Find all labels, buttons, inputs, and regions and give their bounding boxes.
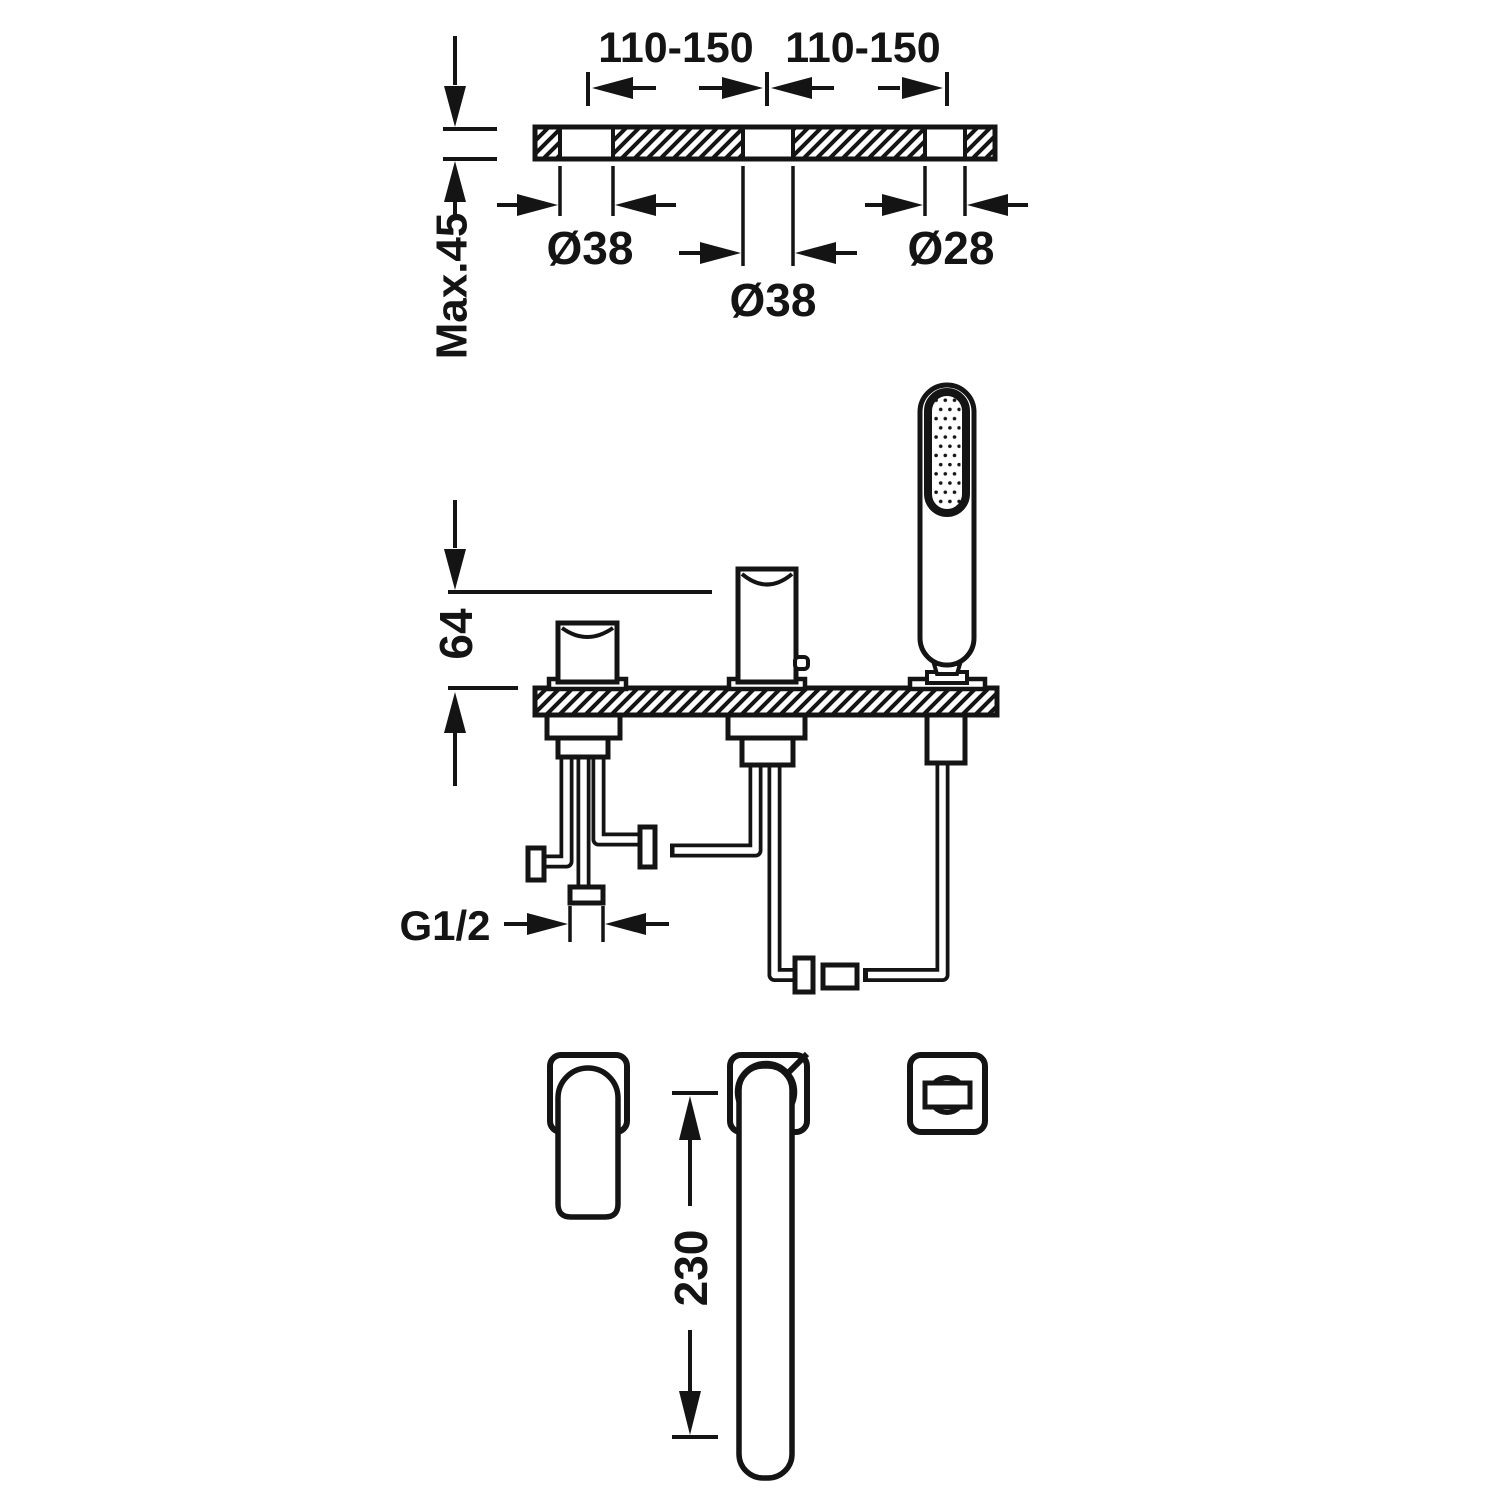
handle-left-pipe [536, 751, 567, 862]
arrow-left-icon [967, 194, 1008, 216]
arrow-right-icon [527, 913, 568, 935]
arrow-up-icon [444, 692, 466, 733]
deck-hatch-segment [793, 127, 925, 159]
dim-thread-size: G1/2 [399, 902, 669, 949]
arrow-left-icon [615, 194, 656, 216]
hole-spacing-left-label: 110-150 [598, 24, 753, 72]
deck-cross-section-view: 110-150 110-150 Ø38 [428, 24, 1029, 359]
diverter-knob [795, 657, 808, 669]
deck-slab-section [535, 127, 995, 159]
deck-hatch-segment [613, 127, 743, 159]
arrow-down-icon [444, 86, 466, 127]
deck-slab-side [535, 688, 997, 715]
hand-shower-hose-pipe [863, 758, 943, 975]
shower-holder-top-view [910, 1055, 985, 1132]
holder-clip [925, 1083, 970, 1107]
arrow-left-icon [592, 77, 633, 99]
arrow-down-icon [444, 549, 466, 590]
spout-top-view [730, 1054, 807, 1478]
body-height-label: 64 [430, 608, 482, 660]
under-deck-plumbing [528, 715, 965, 992]
dim-hole-spacing: 110-150 110-150 [588, 24, 947, 106]
handle-valve-block [558, 738, 608, 757]
deck-hatch-segment [965, 127, 995, 159]
installation-side-view: 64 [399, 385, 997, 992]
dim-hole-right-diameter: Ø28 [865, 194, 1028, 274]
arrow-down-icon [679, 1391, 701, 1435]
arrow-right-icon [517, 194, 558, 216]
arrow-right-icon [722, 77, 763, 99]
arrow-left-icon [771, 77, 812, 99]
arrow-right-icon [882, 194, 923, 216]
hand-shower-side-view [910, 385, 985, 689]
mixer-body-side-view [729, 569, 808, 689]
handle-top-view [550, 1055, 627, 1217]
mixer-mounting-nut [728, 715, 805, 738]
handle-lever [558, 1068, 618, 1217]
spout-tube [739, 1066, 792, 1478]
right-pipe-fitting [640, 827, 655, 867]
spout-length-label: 230 [665, 1230, 717, 1307]
arrow-up-icon [679, 1096, 701, 1140]
arrow-right-icon [700, 242, 741, 264]
component-top-views: 230 [550, 1054, 985, 1478]
spray-nozzles [934, 398, 961, 507]
diagram-page: 110-150 110-150 Ø38 [0, 0, 1500, 1500]
hole-spacing-right-label: 110-150 [785, 24, 940, 72]
hole-center-diameter-label: Ø38 [730, 274, 817, 326]
arrow-up-icon [444, 161, 466, 202]
technical-diagram: 110-150 110-150 Ø38 [0, 0, 1500, 1500]
arrow-right-icon [902, 77, 943, 99]
mixer-valve-block [742, 738, 793, 765]
mixer-right-pipe [775, 761, 799, 975]
dim-spout-length: 230 [665, 1093, 718, 1437]
thread-size-label: G1/2 [399, 902, 490, 949]
deck-thickness-label: Max.45 [428, 213, 477, 360]
mixer-pipe-fitting [795, 958, 813, 992]
hole-right-diameter-label: Ø28 [908, 222, 995, 274]
arrow-left-icon [795, 242, 836, 264]
arrow-left-icon [605, 913, 646, 935]
hose-union-fitting [823, 965, 857, 988]
left-pipe-fitting [528, 848, 544, 880]
hole-left-diameter-label: Ø38 [547, 222, 634, 274]
dim-hole-center-diameter: Ø38 [679, 242, 857, 326]
mixer-left-pipe [670, 761, 756, 851]
dim-deck-thickness: Max.45 [428, 36, 498, 359]
dim-hole-left-diameter: Ø38 [497, 194, 676, 274]
deck-hatch-segment [535, 127, 560, 159]
handle-mounting-nut [547, 715, 620, 738]
center-pipe-fitting [570, 887, 603, 903]
hand-shower-elbow-block [927, 715, 965, 763]
handle-side-view [549, 623, 626, 689]
